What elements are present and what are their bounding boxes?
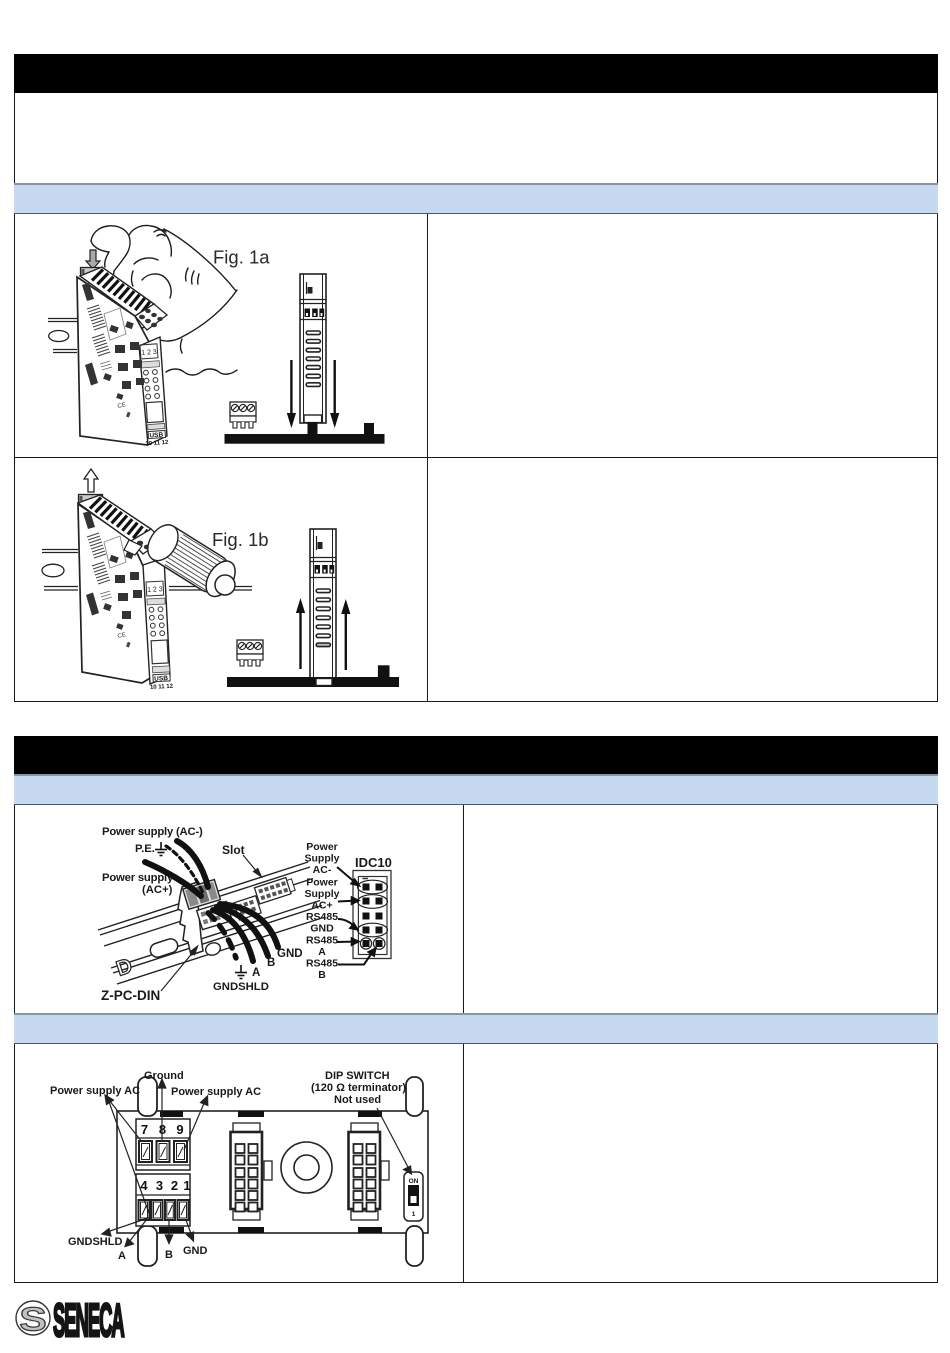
svg-text:2: 2 (171, 1178, 178, 1193)
svg-text:(120 Ω terminator): (120 Ω terminator) (311, 1082, 406, 1094)
svg-text:9: 9 (176, 1122, 183, 1137)
svg-text:GNDSHLD: GNDSHLD (213, 981, 269, 993)
svg-text:RS485: RS485 (306, 935, 338, 947)
svg-text:GND: GND (277, 948, 303, 960)
svg-text:USB: USB (154, 675, 168, 683)
svg-text:1: 1 (412, 1211, 416, 1218)
svg-text:D: D (114, 954, 136, 981)
svg-text:A: A (252, 967, 260, 979)
svg-text:Power: Power (306, 841, 338, 853)
svg-text:1 2 3: 1 2 3 (147, 586, 163, 594)
svg-text:IDC10: IDC10 (355, 855, 392, 870)
svg-text:ON: ON (409, 1178, 419, 1185)
svg-text:A: A (118, 1250, 126, 1262)
svg-text:B: B (165, 1249, 173, 1261)
svg-text:Power supply AC: Power supply AC (50, 1085, 140, 1097)
svg-text:GND: GND (310, 923, 334, 935)
svg-text:GND: GND (183, 1245, 208, 1257)
svg-text:RS485: RS485 (306, 958, 338, 970)
svg-text:Fig. 1a: Fig. 1a (213, 247, 270, 268)
svg-text:S: S (19, 1300, 46, 1338)
svg-text:Slot: Slot (222, 843, 245, 857)
svg-text:AC-: AC- (313, 864, 332, 876)
svg-text:Supply: Supply (304, 853, 339, 865)
svg-text:GNDSHLD: GNDSHLD (68, 1236, 122, 1248)
svg-text:Ground: Ground (144, 1070, 184, 1082)
svg-text:Power: Power (306, 877, 338, 889)
svg-text:7: 7 (141, 1122, 148, 1137)
svg-text:USB: USB (149, 432, 163, 440)
svg-text:P.E.: P.E. (135, 843, 155, 855)
svg-text:Fig. 1b: Fig. 1b (212, 529, 269, 550)
svg-text:3: 3 (156, 1178, 163, 1193)
svg-text:1 2 3: 1 2 3 (141, 349, 157, 357)
svg-text:1: 1 (183, 1178, 190, 1193)
svg-text:SENECA: SENECA (53, 1295, 124, 1345)
svg-text:DIP SWITCH: DIP SWITCH (325, 1070, 390, 1082)
svg-text:(AC+): (AC+) (142, 884, 173, 896)
svg-text:Z-PC-DIN: Z-PC-DIN (101, 988, 160, 1003)
svg-text:B: B (318, 969, 326, 981)
svg-text:Supply: Supply (304, 888, 339, 900)
svg-text:A: A (318, 946, 326, 958)
svg-text:Not used: Not used (334, 1094, 381, 1106)
svg-text:4: 4 (140, 1178, 148, 1193)
svg-text:Power supply (AC-): Power supply (AC-) (102, 826, 203, 838)
svg-text:10 11 12: 10 11 12 (150, 684, 174, 691)
svg-text:Power supply AC: Power supply AC (171, 1086, 261, 1098)
svg-text:10 11 12: 10 11 12 (145, 440, 169, 448)
